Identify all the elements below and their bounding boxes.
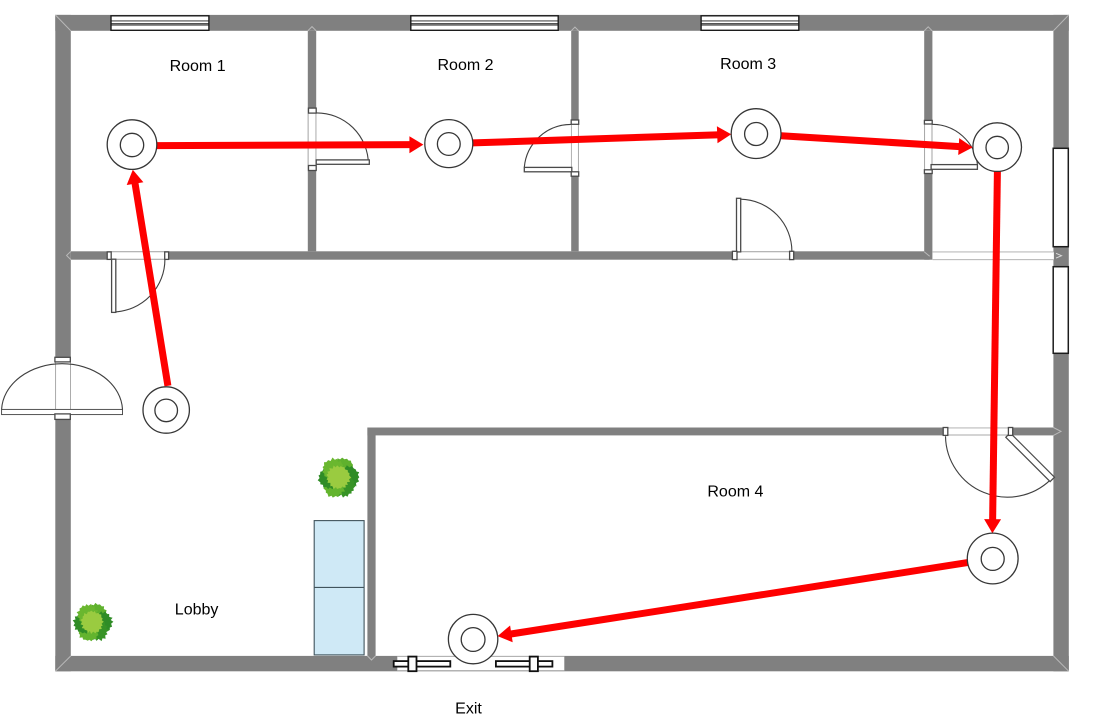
svg-text:Room 4: Room 4: [707, 484, 763, 501]
svg-text:Room 1: Room 1: [170, 58, 226, 75]
svg-text:Exit: Exit: [455, 701, 482, 718]
svg-text:Room 3: Room 3: [720, 56, 776, 73]
svg-text:Room 2: Room 2: [437, 57, 493, 74]
svg-text:Lobby: Lobby: [175, 602, 219, 619]
